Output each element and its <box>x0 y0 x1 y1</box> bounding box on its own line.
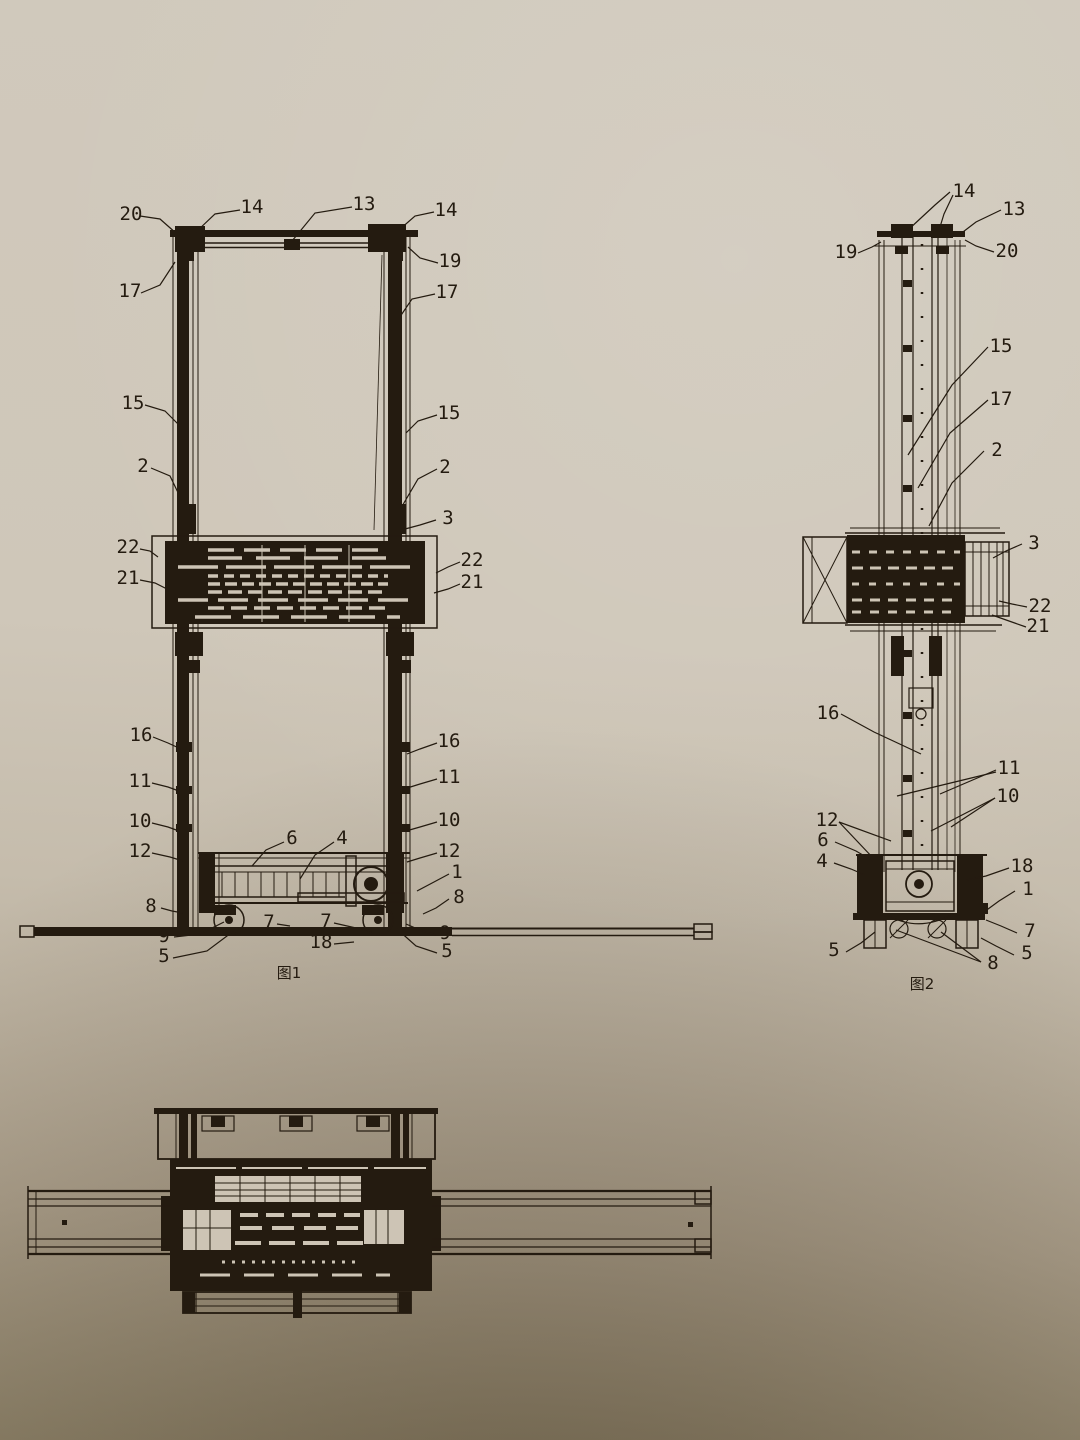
figure-2-side-view: 14 13 19 20 15 17 2 3 22 21 16 11 10 12 … <box>803 180 1051 993</box>
part-label-11-right: 11 <box>438 766 461 788</box>
part-label-6: 6 <box>286 827 297 849</box>
part-label-11: 11 <box>998 757 1021 779</box>
part-label-13: 13 <box>1003 198 1026 220</box>
fig3-top-flange <box>154 1108 438 1167</box>
part-label-1: 1 <box>451 861 462 883</box>
part-label-8-left: 8 <box>145 895 156 917</box>
fig2-lift-carriage <box>803 528 1009 631</box>
fig3-bottom-ladder-frame <box>183 1288 411 1318</box>
part-label-14-left: 14 <box>241 196 264 218</box>
part-label-12-left: 12 <box>129 840 152 862</box>
fig2-top-cap <box>874 224 966 254</box>
part-label-3: 3 <box>1028 532 1039 554</box>
part-label-15-left: 15 <box>122 392 145 414</box>
part-label-2-right: 2 <box>439 456 450 478</box>
part-label-1: 1 <box>1022 878 1033 900</box>
fig2-caption: 图2 <box>910 975 935 993</box>
part-label-11-left: 11 <box>129 770 152 792</box>
figure-1-front-view: 20 14 13 14 19 17 17 15 15 2 2 3 22 21 2… <box>20 193 712 982</box>
part-label-8-right: 8 <box>453 886 464 908</box>
part-label-4: 4 <box>816 850 827 872</box>
fig2-mast-joints <box>891 636 942 719</box>
part-label-5-left: 5 <box>828 939 839 961</box>
fig3-clips <box>202 1116 389 1131</box>
part-label-21-right: 21 <box>461 571 484 593</box>
part-label-15-right: 15 <box>438 402 461 424</box>
part-label-5-right: 5 <box>441 940 452 962</box>
fig1-base-platform <box>198 853 410 935</box>
part-label-21: 21 <box>1027 615 1050 637</box>
part-label-14: 14 <box>953 180 976 202</box>
fig1-caption: 图1 <box>277 964 302 982</box>
part-label-17: 17 <box>990 388 1013 410</box>
fig1-lift-carriage <box>152 536 437 628</box>
part-label-20: 20 <box>120 203 143 225</box>
part-label-7: 7 <box>1024 920 1035 942</box>
fig3-travel-rail-left <box>28 1186 170 1259</box>
drawing-canvas: 20 14 13 14 19 17 17 15 15 2 2 3 22 21 2… <box>0 0 1080 1440</box>
part-label-21-left: 21 <box>117 567 140 589</box>
part-label-22-left: 22 <box>117 536 140 558</box>
part-label-17-left: 17 <box>119 280 142 302</box>
fig1-top-beam <box>170 224 418 261</box>
part-label-2-left: 2 <box>137 455 148 477</box>
part-label-17-right: 17 <box>436 281 459 303</box>
part-label-3: 3 <box>442 507 453 529</box>
fig3-machine-block <box>161 1159 441 1291</box>
part-label-16-left: 16 <box>130 724 153 746</box>
part-label-13: 13 <box>353 193 376 215</box>
part-label-10-left: 10 <box>129 810 152 832</box>
part-label-5-left: 5 <box>158 945 169 967</box>
part-label-4: 4 <box>336 827 347 849</box>
part-label-7-a: 7 <box>263 911 274 933</box>
photographed-patent-page: 20 14 13 14 19 17 17 15 15 2 2 3 22 21 2… <box>0 0 1080 1440</box>
part-label-12-right: 12 <box>438 840 461 862</box>
part-label-12: 12 <box>816 809 839 831</box>
part-label-5-right: 5 <box>1021 942 1032 964</box>
part-label-16: 16 <box>817 702 840 724</box>
part-label-10-right: 10 <box>438 809 461 831</box>
part-label-8: 8 <box>987 952 998 974</box>
part-label-15: 15 <box>990 335 1013 357</box>
part-label-9-left: 9 <box>158 925 169 947</box>
fig3-travel-rail-right <box>432 1186 711 1259</box>
part-label-6: 6 <box>817 829 828 851</box>
part-label-2: 2 <box>991 439 1002 461</box>
part-label-18: 18 <box>310 931 333 953</box>
part-label-19: 19 <box>439 250 462 272</box>
part-label-18: 18 <box>1011 855 1034 877</box>
part-label-19: 19 <box>835 241 858 263</box>
part-label-7-b: 7 <box>320 910 331 932</box>
figure-3-top-view <box>28 1108 711 1318</box>
part-label-14-right: 14 <box>435 199 458 221</box>
part-label-22: 22 <box>1029 595 1052 617</box>
part-label-10: 10 <box>997 785 1020 807</box>
part-label-20: 20 <box>996 240 1019 262</box>
part-label-22-right: 22 <box>461 549 484 571</box>
fig1-ground-rail <box>20 924 712 939</box>
part-label-16-right: 16 <box>438 730 461 752</box>
